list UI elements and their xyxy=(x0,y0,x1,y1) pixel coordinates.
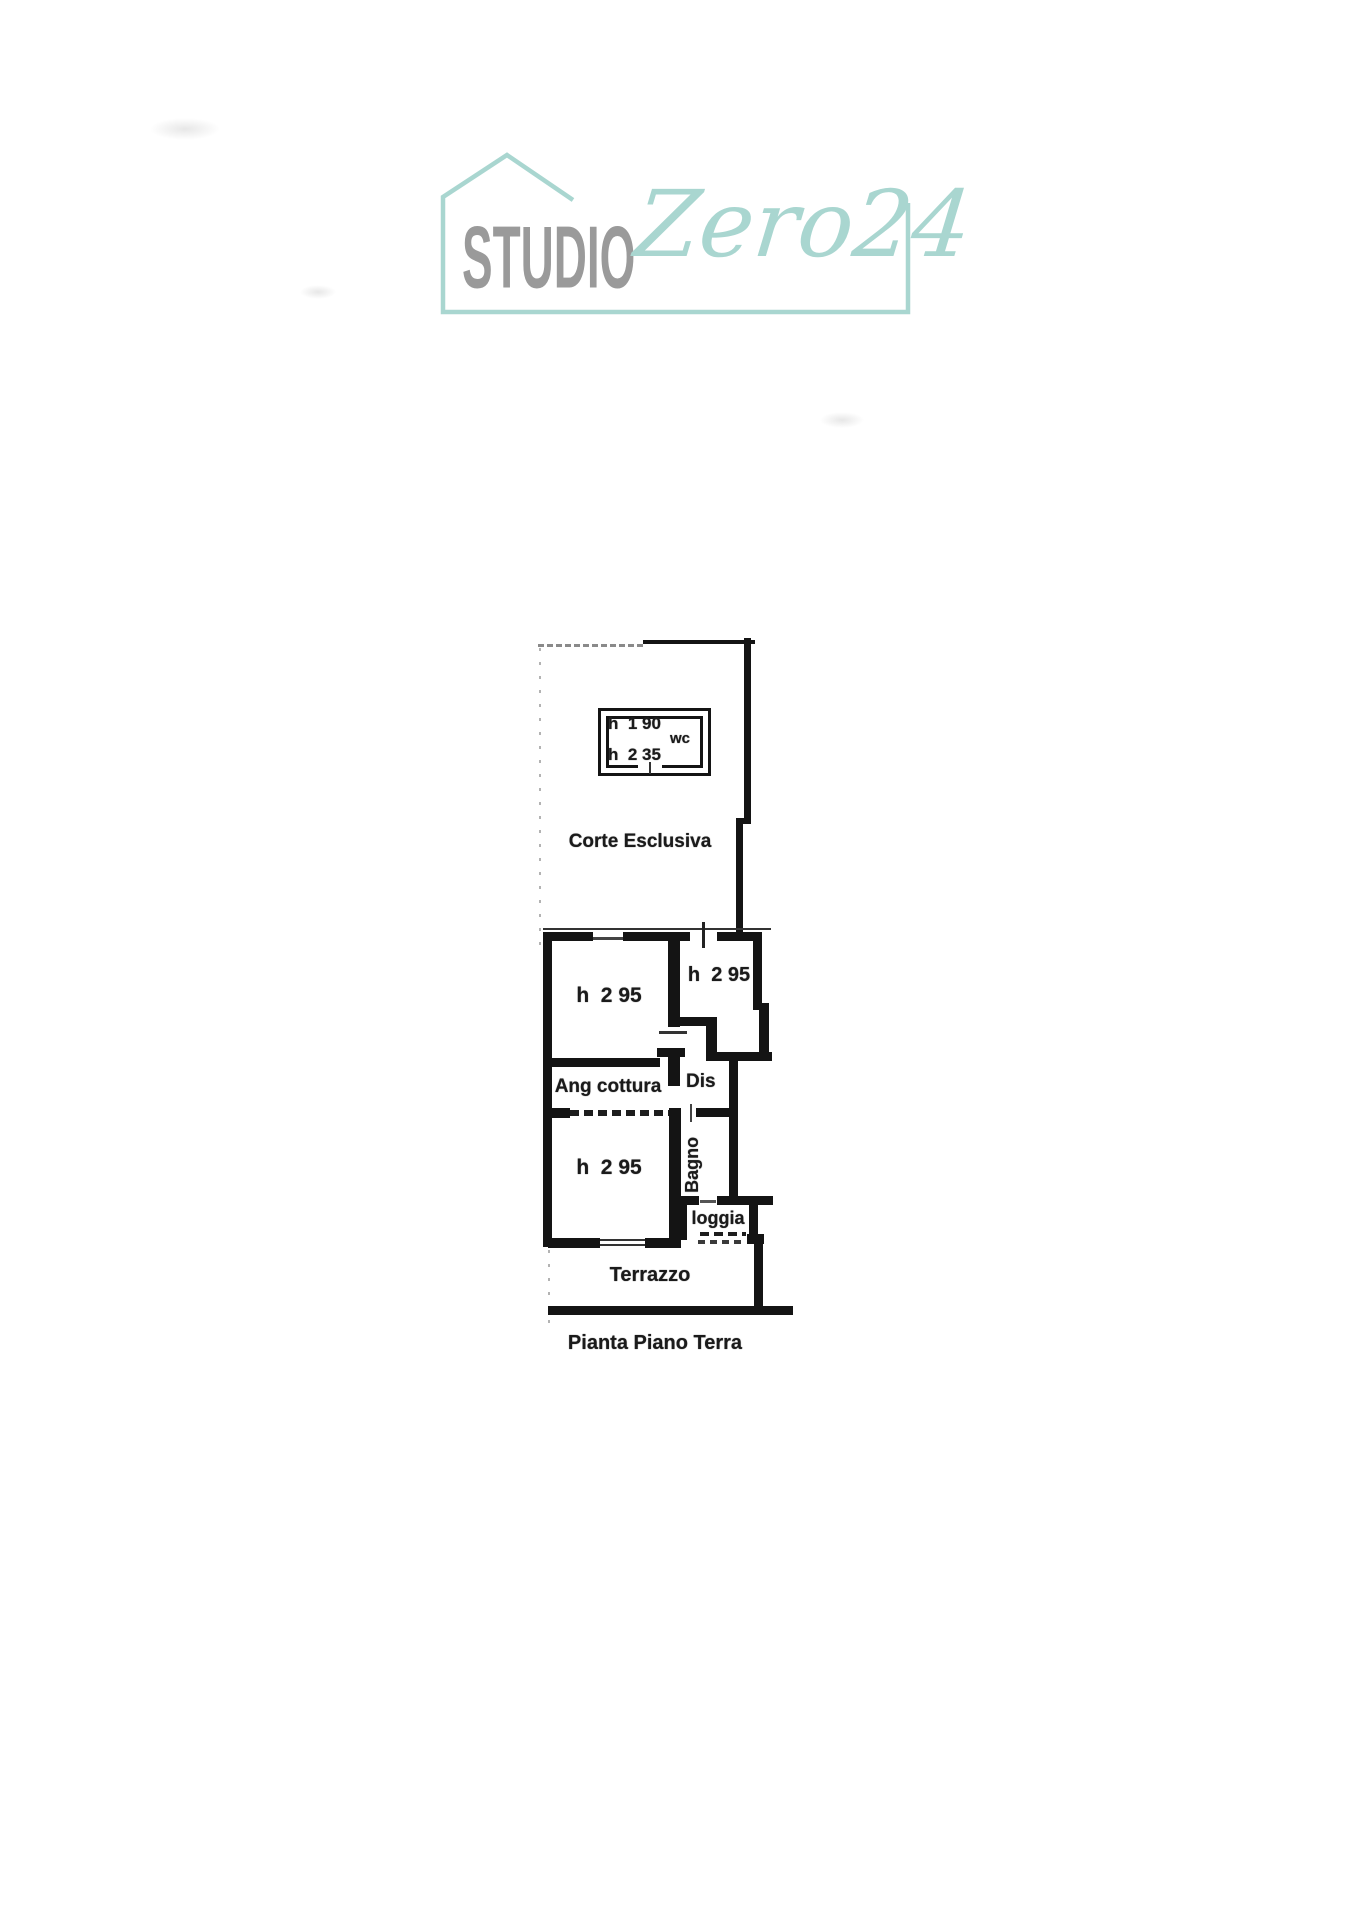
room3-height-label: h 2 95 xyxy=(570,1156,648,1179)
wall-bath-bottom-a xyxy=(681,1196,699,1205)
scan-smudge xyxy=(150,118,220,140)
wall-hall-bottom xyxy=(696,1108,731,1117)
logo-text-zero24: Zero24 xyxy=(631,179,975,271)
wall-courtyard-right-lower xyxy=(736,822,743,934)
scan-smudge xyxy=(820,412,864,428)
courtyard-label: Corte Esclusiva xyxy=(560,832,720,853)
wall-terrace-right xyxy=(754,1240,763,1315)
scanned-floorplan-page: STUDIO Zero24 h 1 90 wc h 2 35 Corte Esc… xyxy=(0,0,1358,1920)
bath-label: Bagno xyxy=(683,1125,703,1205)
room2-height-label: h 2 95 xyxy=(682,964,756,986)
plan-caption: Pianta Piano Terra xyxy=(565,1332,745,1354)
window-room3-b xyxy=(600,1244,645,1246)
wc-height-lower-label: h 2 35 xyxy=(608,746,661,765)
door-tick-hall xyxy=(659,1031,687,1034)
wall-room3-bottom-b xyxy=(645,1238,681,1248)
kitchen-label: Ang cottura xyxy=(552,1077,664,1098)
wc-height-upper-label: h 1 90 xyxy=(608,715,661,734)
scan-smudge xyxy=(300,285,336,299)
wall-kitchen-bottom-dashed xyxy=(570,1110,669,1116)
wall-left-exterior xyxy=(543,932,552,1247)
loggia-dashed-1 xyxy=(700,1232,746,1236)
wall-room3-bottom-a xyxy=(548,1238,600,1248)
wall-courtyard-top-left xyxy=(538,644,645,647)
loggia-dashed-2 xyxy=(698,1240,742,1244)
wall-courtyard-right-upper xyxy=(744,638,751,822)
wall-top-thin-line xyxy=(543,928,771,930)
wall-courtyard-top-right xyxy=(643,640,755,644)
door-tick-loggia xyxy=(700,1200,716,1203)
wall-kitchen-bottom-solid xyxy=(548,1108,570,1118)
wall-top-seg1 xyxy=(548,932,593,941)
wall-courtyard-left-dotted xyxy=(539,648,541,948)
door-tick-bath xyxy=(690,1104,692,1122)
terrace-label: Terrazzo xyxy=(590,1264,710,1286)
logo-text-studio: STUDIO xyxy=(462,215,635,303)
floor-plan: h 1 90 wc h 2 35 Corte Esclusiva h 2 95 … xyxy=(530,620,790,1390)
window-room3-a xyxy=(600,1239,645,1241)
hall-label: Dis xyxy=(686,1072,716,1093)
wall-right-mid xyxy=(729,1061,738,1201)
wall-t-stub xyxy=(668,1048,680,1086)
door-tick-top xyxy=(702,922,705,948)
studio-zero24-logo: STUDIO Zero24 xyxy=(440,145,920,320)
wc-label: wc xyxy=(670,731,690,748)
wall-room2-bottom-c xyxy=(706,1052,772,1061)
wall-room1-bottom xyxy=(548,1058,660,1067)
wall-bath-bottom-b xyxy=(717,1196,773,1205)
room1-height-label: h 2 95 xyxy=(570,984,648,1007)
loggia-label: loggia xyxy=(685,1209,751,1229)
window-sill-top xyxy=(593,937,623,940)
wall-room-divider xyxy=(668,932,680,1027)
